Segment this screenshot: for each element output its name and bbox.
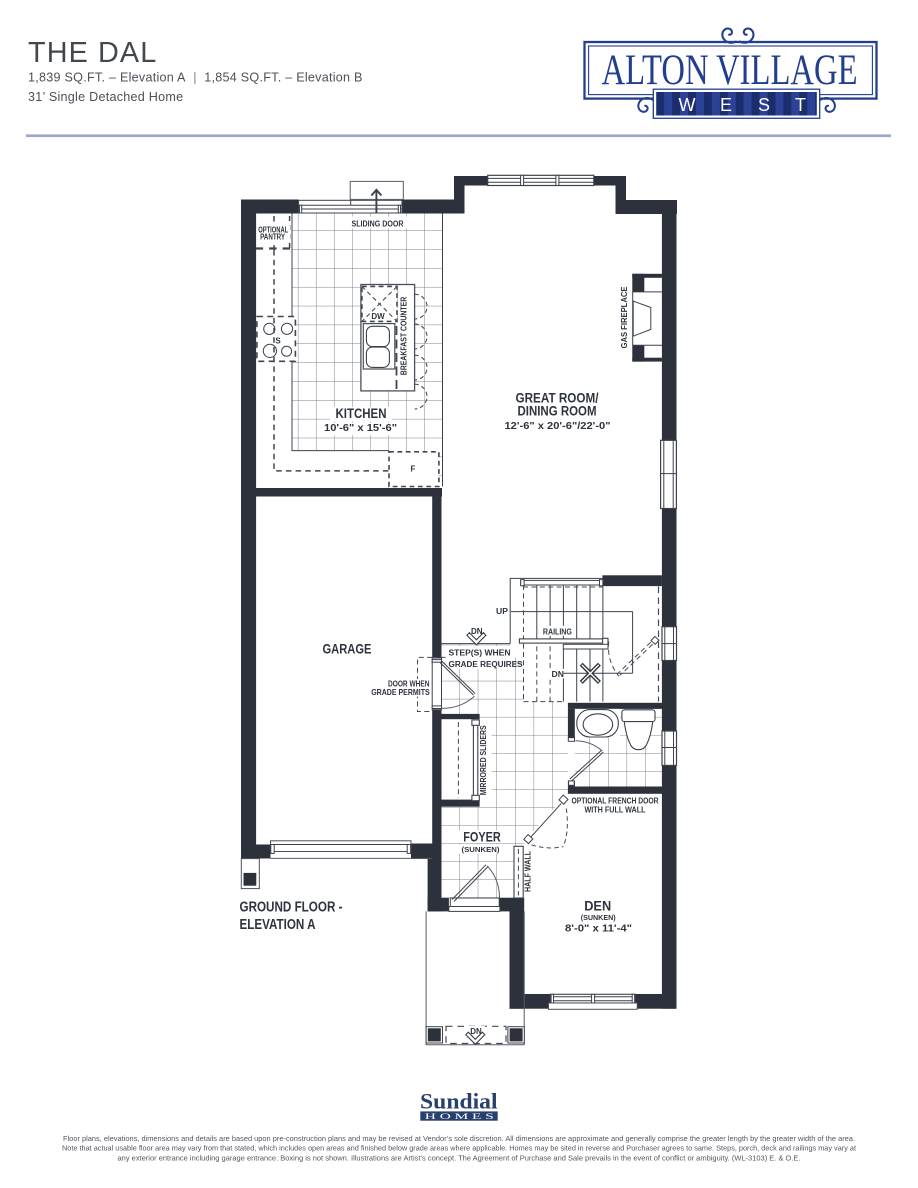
- svg-text:ALTON VILLAGE: ALTON VILLAGE: [602, 45, 858, 94]
- svg-text:12'-6" x 20'-6"/22'-0": 12'-6" x 20'-6"/22'-0": [505, 421, 611, 432]
- svg-text:RAILING: RAILING: [543, 627, 572, 637]
- svg-text:E: E: [720, 95, 732, 115]
- svg-text:BREAKFAST COUNTER: BREAKFAST COUNTER: [399, 296, 409, 375]
- svg-text:S: S: [275, 337, 281, 346]
- svg-text:HALF WALL: HALF WALL: [523, 851, 533, 892]
- svg-text:SLIDING DOOR: SLIDING DOOR: [352, 219, 405, 229]
- svg-text:31’ Single Detached Home: 31’ Single Detached Home: [28, 90, 183, 104]
- svg-text:THE DAL: THE DAL: [28, 37, 157, 69]
- svg-text:GAS FIREPLACE: GAS FIREPLACE: [619, 286, 629, 348]
- svg-text:GROUND FLOOR -: GROUND FLOOR -: [240, 899, 343, 915]
- svg-text:(SUNKEN): (SUNKEN): [462, 845, 501, 854]
- svg-text:(SUNKEN): (SUNKEN): [581, 913, 617, 922]
- svg-text:10'-6" x 15'-6": 10'-6" x 15'-6": [324, 423, 397, 434]
- svg-text:1,839 SQ.FT. – Elevation A |: 1,839 SQ.FT. – Elevation A | 1,854 SQ.FT…: [28, 71, 363, 85]
- svg-text:Sundial: Sundial: [420, 1088, 498, 1113]
- svg-text:H O M E S: H O M E S: [425, 1112, 495, 1121]
- svg-text:DEN: DEN: [584, 899, 611, 914]
- svg-text:T: T: [795, 95, 806, 115]
- svg-text:ELEVATION A: ELEVATION A: [240, 917, 316, 933]
- svg-text:UP: UP: [496, 606, 508, 616]
- svg-text:DW: DW: [371, 312, 385, 321]
- svg-text:DN: DN: [552, 669, 564, 679]
- svg-text:GRADE REQUIRES: GRADE REQUIRES: [449, 659, 523, 669]
- svg-text:MIRRORED SLIDERS: MIRRORED SLIDERS: [478, 725, 488, 795]
- svg-text:Floor plans, elevations, dimen: Floor plans, elevations, dimensions and …: [63, 1134, 855, 1143]
- svg-text:W: W: [679, 95, 696, 115]
- svg-text:any exterior entrance includin: any exterior entrance including garage e…: [118, 1153, 801, 1162]
- svg-text:8'-0" x 11'-4": 8'-0" x 11'-4": [565, 923, 632, 934]
- svg-text:WITH FULL WALL: WITH FULL WALL: [585, 805, 646, 815]
- svg-text:GARAGE: GARAGE: [323, 642, 372, 657]
- svg-text:GRADE PERMITS: GRADE PERMITS: [371, 688, 430, 697]
- svg-text:Note that actual usable floor: Note that actual usable floor area may v…: [62, 1144, 857, 1153]
- svg-text:PANTRY: PANTRY: [260, 233, 286, 242]
- svg-text:S: S: [758, 95, 770, 115]
- svg-text:STEP(S) WHEN: STEP(S) WHEN: [449, 648, 511, 658]
- svg-text:F: F: [411, 465, 416, 474]
- svg-text:DINING ROOM: DINING ROOM: [518, 403, 597, 418]
- svg-text:FOYER: FOYER: [463, 829, 501, 844]
- svg-text:KITCHEN: KITCHEN: [336, 406, 387, 421]
